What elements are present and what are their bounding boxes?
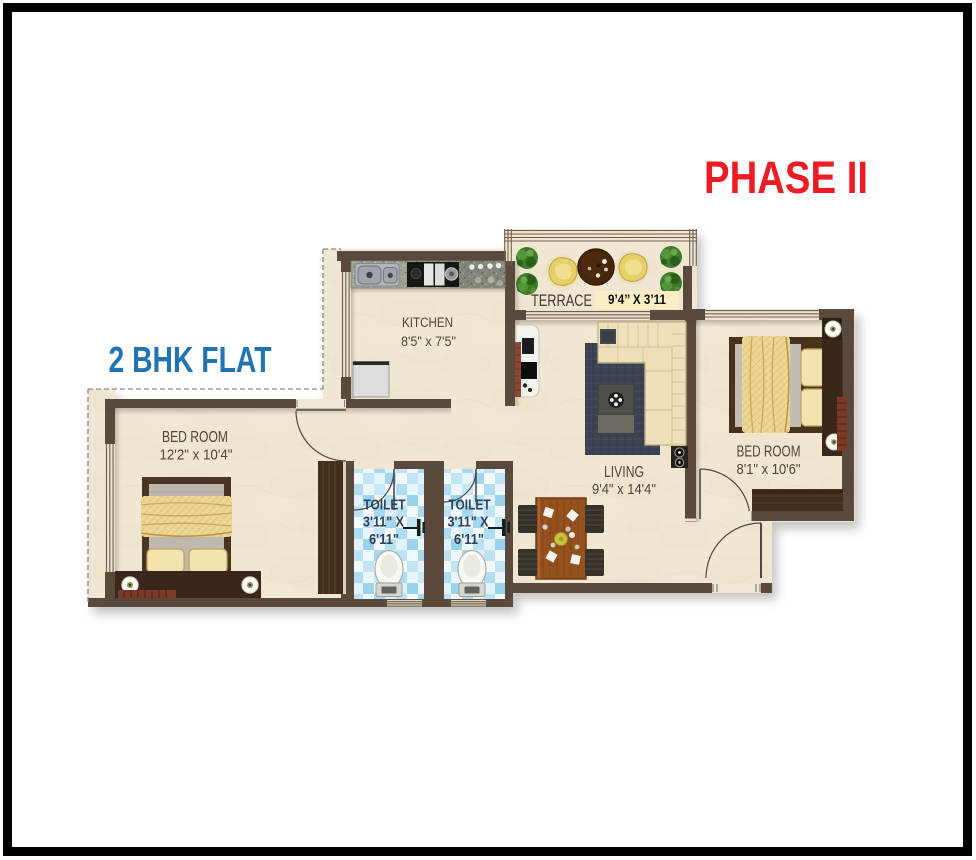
svg-text:6'11": 6'11" xyxy=(454,531,484,548)
svg-text:BED ROOM: BED ROOM xyxy=(737,444,801,461)
svg-text:12'2" x 10'4": 12'2" x 10'4" xyxy=(160,447,233,464)
svg-text:8'1" x 10'6": 8'1" x 10'6" xyxy=(737,461,801,478)
svg-text:TOILET: TOILET xyxy=(449,497,491,514)
svg-text:2 BHK FLAT: 2 BHK FLAT xyxy=(109,339,272,380)
svg-text:3'11" X: 3'11" X xyxy=(363,514,404,531)
svg-text:TERRACE: TERRACE xyxy=(531,292,592,310)
svg-text:LIVING: LIVING xyxy=(604,464,644,481)
svg-text:9'4" x 14'4": 9'4" x 14'4" xyxy=(592,481,656,498)
svg-text:BED ROOM: BED ROOM xyxy=(162,429,228,446)
svg-text:3'11" X: 3'11" X xyxy=(448,514,489,531)
svg-text:6'11": 6'11" xyxy=(369,531,399,548)
svg-text:TOILET: TOILET xyxy=(364,497,406,514)
svg-text:9’4’’ X 3’11: 9’4’’ X 3’11 xyxy=(608,292,666,307)
svg-text:PHASE II: PHASE II xyxy=(704,152,868,203)
svg-text:KITCHEN: KITCHEN xyxy=(402,315,453,330)
svg-text:8'5" x 7'5": 8'5" x 7'5" xyxy=(401,334,456,349)
